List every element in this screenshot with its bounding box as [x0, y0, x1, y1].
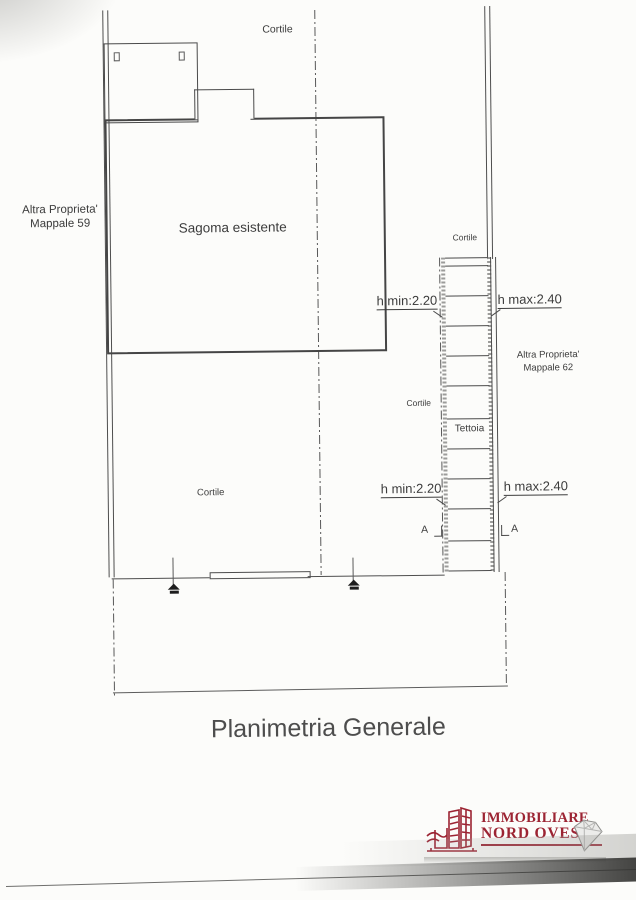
- cortile-left-label: Cortile: [184, 487, 238, 499]
- parcel-62-line1: Altra Proprieta': [509, 349, 587, 363]
- tettoia-rung: [449, 570, 492, 571]
- valve-base: [169, 591, 178, 594]
- h-min-lower-text: h min:2.20: [381, 481, 442, 499]
- tettoia-rung: [447, 418, 490, 419]
- column-mark: [114, 52, 120, 61]
- cortile-middle-label: Cortile: [396, 398, 442, 409]
- tettoia-rung: [445, 295, 488, 296]
- h-min-upper-text: h min:2.20: [376, 293, 437, 311]
- cortile-top-label: Cortile: [247, 23, 307, 36]
- sagoma-esistente-label: Sagoma esistente: [148, 219, 318, 236]
- h-max-lower-annotation: h max:2.40: [504, 478, 568, 494]
- h-max-upper-text: h max:2.40: [497, 291, 562, 309]
- cortile-right-label: Cortile: [441, 232, 489, 243]
- courtyard-wall-step: [210, 571, 311, 579]
- courtyard-wall: [112, 577, 210, 579]
- tettoia-label: Tettoia: [441, 423, 498, 435]
- column-mark: [179, 52, 185, 61]
- valve-base: [349, 587, 358, 590]
- tettoia-structure: Tettoia: [439, 257, 500, 573]
- valve-icon: [347, 580, 361, 590]
- parcel-62-label: Altra Proprieta' Mappale 62: [509, 349, 587, 376]
- scanned-site-plan-page: Sagoma esistente Altra Proprieta' Mappal…: [0, 0, 636, 900]
- section-marker-left-label: A: [421, 524, 428, 536]
- parcel-59-label: Altra Proprieta' Mappale 59: [2, 203, 117, 232]
- tettoia-rung: [447, 448, 490, 449]
- parcel-59-line1: Altra Proprieta': [2, 203, 117, 218]
- h-min-upper-annotation: h min:2.20: [376, 293, 435, 309]
- tettoia-rung: [448, 540, 491, 541]
- section-cut-icon: [501, 525, 509, 536]
- tettoia-rung: [447, 385, 490, 386]
- lower-strip-bottom-line: [113, 685, 508, 693]
- lower-strip-right-line: [505, 572, 508, 686]
- boundary-right-line: [484, 6, 493, 259]
- tettoia-rung: [446, 325, 489, 326]
- valve-triangle: [348, 580, 360, 586]
- courtyard-wall: [308, 575, 445, 578]
- annex-outline: [104, 42, 199, 123]
- section-marker-right-label: A: [511, 523, 518, 535]
- valve-icon: [167, 584, 181, 594]
- marker-stem: [172, 558, 174, 586]
- lower-strip-left-line: [113, 579, 116, 697]
- tettoia-rung: [445, 257, 488, 258]
- h-min-lower-annotation: h min:2.20: [381, 481, 440, 497]
- parcel-62-line2: Mappale 62: [509, 362, 587, 376]
- tettoia-rung: [446, 355, 489, 356]
- parcel-59-line2: Mappale 59: [3, 217, 118, 232]
- h-max-upper-annotation: h max:2.40: [497, 291, 561, 307]
- tettoia-rung: [448, 478, 491, 479]
- site-plan-drawing: Sagoma esistente Altra Proprieta' Mappal…: [0, 0, 636, 784]
- building-notch: [194, 89, 254, 120]
- drawing-title: Planimetria Generale: [193, 712, 463, 744]
- h-max-lower-text: h max:2.40: [504, 478, 569, 496]
- valve-triangle: [168, 584, 180, 590]
- tettoia-rung: [445, 265, 488, 266]
- tettoia-rung: [448, 508, 491, 509]
- section-cut-icon: [434, 526, 442, 537]
